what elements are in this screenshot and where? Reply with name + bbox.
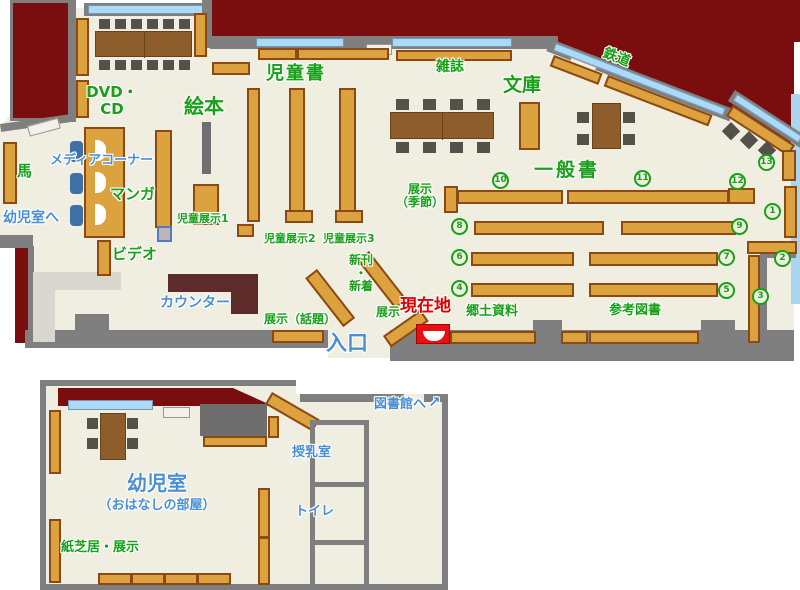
- window: [68, 400, 153, 410]
- label-to-infant-room: 幼児室へ: [3, 211, 59, 226]
- bookshelf: [258, 48, 297, 60]
- bookshelf: [289, 88, 305, 222]
- bookshelf: [164, 573, 198, 585]
- bookshelf: [457, 190, 563, 204]
- chair: [147, 60, 158, 70]
- label-counter: カウンター: [160, 296, 230, 311]
- reading-table: [95, 31, 192, 57]
- label-reference-books: 参考図書: [609, 304, 661, 318]
- library-floor-map: DVD・CD 絵本 馬 マンガ ビデオ 児童書 児童展示1 児童展示2 児童展示…: [0, 0, 800, 590]
- chair: [477, 99, 490, 110]
- room-wall: [310, 420, 369, 425]
- counter: [231, 290, 258, 314]
- bookshelf: [272, 330, 324, 343]
- label-current-location: 現在地: [400, 297, 451, 316]
- display-base: [285, 210, 313, 223]
- bookshelf: [471, 252, 574, 266]
- bookshelf: [98, 573, 132, 585]
- bookshelf: [297, 48, 389, 60]
- label-dvd-cd: DVD・CD: [86, 84, 138, 117]
- bookshelf: [258, 488, 270, 538]
- circled-number-2: 2: [774, 250, 791, 267]
- marker-arc: [423, 331, 445, 341]
- label-infant-room: 幼児室: [97, 472, 217, 494]
- label-kamishibai-display: 紙芝居・展示: [61, 541, 139, 555]
- bookshelf: [621, 221, 736, 235]
- bookshelf: [97, 240, 111, 276]
- bookshelf: [76, 18, 89, 76]
- label-video: ビデオ: [112, 246, 157, 263]
- chair: [87, 438, 98, 449]
- label-horse: 馬: [17, 163, 32, 180]
- chair: [131, 60, 142, 70]
- bookshelf: [194, 13, 207, 57]
- label-children-display1: 児童展示1: [177, 213, 229, 225]
- circled-number-9: 9: [731, 218, 748, 235]
- bookshelf: [339, 88, 356, 222]
- stairwell: [200, 404, 267, 436]
- reading-table: [592, 103, 621, 149]
- circled-number-7: 7: [718, 249, 735, 266]
- label-media-corner: メディアコーナー: [50, 154, 153, 168]
- chair: [179, 19, 190, 29]
- label-entrance: 入口: [326, 332, 368, 355]
- label-manga: マンガ: [110, 186, 155, 203]
- circled-number-5: 5: [718, 282, 735, 299]
- label-to-library: 図書館へ: [374, 398, 426, 412]
- bookshelf: [131, 573, 165, 585]
- exterior-wall-strip: [15, 246, 28, 343]
- chair: [623, 134, 635, 145]
- chair: [163, 19, 174, 29]
- circled-number-10: 10: [492, 172, 509, 189]
- bookshelf: [212, 62, 250, 75]
- bookshelf: [589, 283, 718, 297]
- wall: [0, 235, 33, 248]
- bookshelf: [49, 519, 61, 583]
- bookshelf: [474, 221, 604, 235]
- bookshelf: [155, 130, 172, 228]
- bookshelf: [589, 252, 718, 266]
- chair: [147, 19, 158, 29]
- pillar: [533, 320, 562, 332]
- chair: [115, 19, 126, 29]
- chair: [623, 112, 635, 123]
- chair: [396, 142, 409, 153]
- bookshelf: [258, 537, 270, 585]
- circled-number-3: 3: [752, 288, 769, 305]
- display-stand: [202, 122, 211, 174]
- bookshelf: [203, 436, 267, 447]
- label-display-topics: 展示（話題）: [264, 313, 336, 326]
- circled-number-4: 4: [451, 280, 468, 297]
- media-chair: [70, 205, 83, 226]
- bookshelf: [782, 150, 796, 181]
- current-location-marker: [416, 324, 450, 344]
- chair: [127, 418, 138, 429]
- chair: [477, 142, 490, 153]
- exterior-area: [10, 0, 71, 121]
- window: [256, 38, 344, 47]
- chair: [99, 19, 110, 29]
- bookshelf: [247, 88, 260, 222]
- kiosk-box: [157, 226, 172, 242]
- bookshelf: [747, 241, 797, 254]
- chair: [450, 142, 463, 153]
- label-new-arrivals: 新刊・新着: [333, 254, 389, 294]
- bookshelf: [3, 142, 17, 204]
- circled-number-12: 12: [729, 173, 746, 190]
- lower-map-notch: [296, 378, 448, 394]
- chair: [131, 19, 142, 29]
- reading-table: [390, 112, 494, 139]
- bookshelf: [589, 331, 699, 344]
- circled-number-11: 11: [634, 170, 651, 187]
- circled-number-13: 13: [758, 154, 775, 171]
- label-nursing-room: 授乳室: [292, 446, 331, 460]
- chair: [179, 60, 190, 70]
- bookshelf: [561, 331, 588, 344]
- bookshelf: [567, 190, 729, 204]
- stairs-area: [33, 272, 55, 342]
- label-children-books: 児童書: [266, 64, 326, 84]
- chair: [163, 60, 174, 70]
- bookshelf: [471, 283, 574, 297]
- label-children-display2: 児童展示2: [264, 233, 316, 245]
- display-base: [335, 210, 363, 223]
- room-wall: [310, 482, 369, 487]
- story-table: [100, 413, 126, 460]
- chair: [396, 99, 409, 110]
- label-bunko: 文庫: [503, 75, 541, 96]
- bookshelf: [728, 188, 755, 204]
- pillar: [75, 314, 109, 332]
- chair: [450, 99, 463, 110]
- wall: [68, 0, 76, 122]
- chair: [127, 438, 138, 449]
- bookshelf: [450, 331, 536, 344]
- wall: [390, 347, 794, 361]
- chair: [99, 60, 110, 70]
- chair: [577, 134, 589, 145]
- media-chair: [70, 173, 83, 194]
- display-shelf: [237, 224, 254, 237]
- bookshelf: [197, 573, 231, 585]
- circled-number-1: 1: [764, 203, 781, 220]
- window: [88, 5, 204, 14]
- chair: [423, 142, 436, 153]
- bookshelf: [268, 416, 279, 438]
- window: [392, 38, 512, 47]
- chair: [115, 60, 126, 70]
- room-wall: [310, 540, 369, 545]
- label-display: 展示: [376, 306, 400, 319]
- door: [163, 407, 190, 418]
- pillar: [701, 320, 735, 332]
- room-wall: [364, 420, 369, 584]
- bookshelf: [519, 102, 540, 150]
- label-story-room: （おはなしの部屋）: [87, 499, 227, 513]
- to-library-arrow-icon: ↗: [428, 394, 441, 411]
- bookshelf: [49, 410, 61, 474]
- label-picture-books: 絵本: [184, 95, 224, 117]
- chair: [87, 418, 98, 429]
- chair: [423, 99, 436, 110]
- circled-number-8: 8: [451, 218, 468, 235]
- label-local-materials: 郷土資料: [466, 305, 518, 319]
- label-display-seasonal: 展示（季節）: [392, 183, 448, 209]
- label-children-display3: 児童展示3: [323, 233, 375, 245]
- chair: [577, 112, 589, 123]
- label-general-books: 一般書: [534, 160, 600, 181]
- label-toilet: トイレ: [295, 505, 334, 519]
- bookshelf: [784, 186, 797, 238]
- circled-number-6: 6: [451, 249, 468, 266]
- label-magazines: 雑誌: [436, 60, 464, 75]
